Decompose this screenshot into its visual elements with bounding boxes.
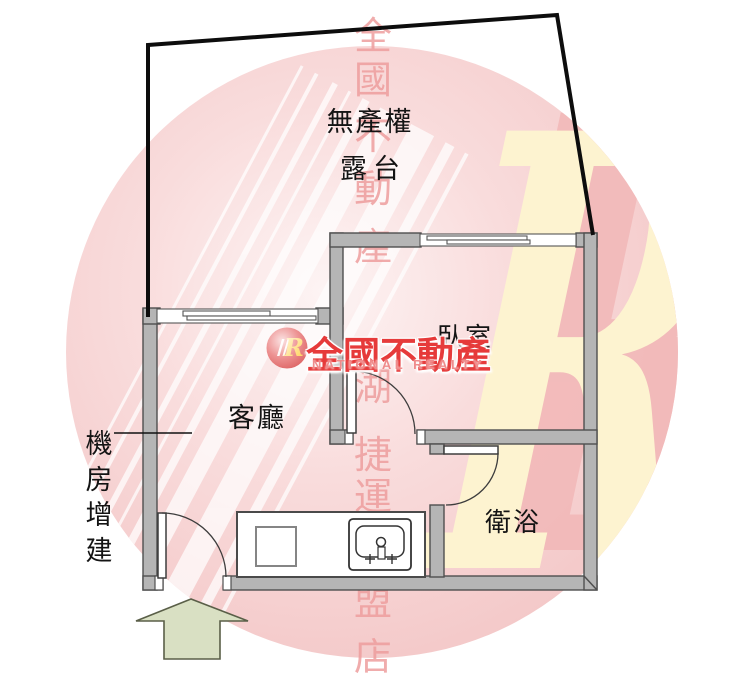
bedroom-door-leaf xyxy=(347,371,356,433)
window-living-pane-1 xyxy=(183,311,270,316)
bedroom-door-arc xyxy=(352,371,415,434)
wall-right xyxy=(584,233,597,590)
entrance-door-arc xyxy=(162,513,226,577)
kitchen-counter xyxy=(237,512,425,577)
sink-drain-icon xyxy=(377,538,386,547)
stove xyxy=(256,527,296,566)
window-bedroom-pane-1 xyxy=(427,236,527,240)
wall-bottom xyxy=(224,576,597,590)
terrace-label: 無產權 露台 xyxy=(320,100,420,186)
wall-bedroom-left xyxy=(330,233,343,444)
window-bedroom-pane-2 xyxy=(447,240,530,244)
bedroom-label: 臥室 xyxy=(437,317,493,354)
wall-bath-left xyxy=(430,505,444,577)
floor-plan-page: R R 全 國 不 動 產 湖 捷 運 盟 店 xyxy=(0,0,745,699)
wall-divider-right xyxy=(417,430,597,444)
wall-bath-hinge-block xyxy=(430,444,444,454)
entrance-arrow-icon xyxy=(136,599,248,659)
living-room-label: 客廳 xyxy=(228,396,286,435)
window-living-pane-2 xyxy=(187,316,316,320)
bathroom-door-leaf xyxy=(444,446,498,454)
terrace-subtitle: 露台 xyxy=(326,147,420,186)
wall-left xyxy=(143,309,157,590)
terrace-title: 無產權 xyxy=(320,100,420,139)
machine-room-annex-label: 機房增建 xyxy=(84,427,114,569)
bathroom-label: 衛浴 xyxy=(485,502,541,539)
sink-faucet-icon xyxy=(378,547,385,559)
wall-bedroom-top xyxy=(330,233,421,247)
bathroom-door-arc xyxy=(446,453,498,505)
entrance-door-leaf xyxy=(158,513,166,578)
